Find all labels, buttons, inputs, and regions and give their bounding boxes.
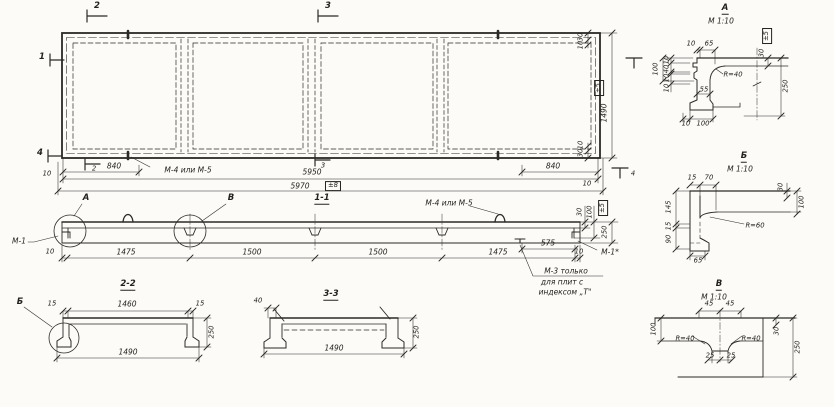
- marker-4-right: 4: [631, 171, 635, 178]
- callout-circle-a: [54, 215, 86, 247]
- mesh-cell: [193, 43, 303, 149]
- radius-v-left: R=40: [675, 336, 694, 343]
- mesh-cell: [448, 43, 591, 149]
- dim-40-a: 40: [664, 65, 671, 74]
- dim-1490-plan: 1490: [600, 103, 608, 122]
- note-m3-line3: индексом „Т": [539, 288, 592, 296]
- dim-10-right-sec11: 10: [575, 249, 584, 256]
- dim-10-a3: 10: [664, 84, 671, 93]
- m3-embed-mark: [515, 239, 525, 243]
- dim-5950: 5950: [302, 168, 321, 176]
- dim-1460: 1460: [117, 300, 136, 308]
- edge-ticks: [274, 307, 390, 321]
- marker-2-bottom: 2: [92, 166, 96, 173]
- radius-v-right: R=40: [741, 336, 760, 343]
- label-m1-left: М-1: [12, 237, 26, 245]
- note-m4-sec11: М-4 или М-5: [425, 199, 472, 207]
- dim-65-a: 65: [705, 41, 714, 48]
- dim-840-left: 840: [107, 162, 121, 170]
- callout-label-a: А: [83, 194, 90, 203]
- dim-45-left-v: 45: [705, 301, 714, 308]
- dim-45-right-v: 45: [726, 301, 735, 308]
- dim-1475-b: 1475: [488, 248, 507, 256]
- dim-55-a: 55: [700, 87, 709, 94]
- note-m3-line2: для плит с: [541, 278, 583, 286]
- dim-edge-top-10: 10: [578, 41, 585, 50]
- callout-circle-b2: [49, 323, 79, 353]
- mesh-cell: [73, 43, 176, 149]
- dim-1475-a: 1475: [116, 248, 135, 256]
- section-label-2-2: 2-2: [120, 280, 135, 291]
- dim-15-left-sec22: 15: [48, 301, 57, 308]
- dim-250-v: 250: [795, 341, 802, 354]
- tolerance-a: ±5: [762, 28, 772, 44]
- dim-840-right: 840: [546, 162, 560, 170]
- marker-1-left: 1: [39, 53, 45, 62]
- foot: [690, 238, 709, 251]
- rib-hidden-lines: [181, 39, 444, 152]
- dim-100-bottom-a: 100: [697, 121, 710, 128]
- drawing-linework: [0, 0, 834, 407]
- dim-10-a1: 10: [664, 56, 671, 65]
- dim-575: 575: [541, 239, 555, 247]
- dim-15-right-sec22: 15: [196, 301, 205, 308]
- callout-label-b2: Б: [17, 298, 23, 307]
- mesh-cell: [321, 43, 433, 149]
- dim-100-b: 100: [799, 196, 806, 209]
- dim-100-left-a: 100: [653, 63, 660, 76]
- dim-10-bottom-a: 10: [682, 121, 691, 128]
- detail-v-drawing: [655, 308, 797, 380]
- section-label-1-1: 1-1: [314, 194, 329, 205]
- dim-250-a: 250: [783, 80, 790, 93]
- detail-b-scale: М 1:10: [727, 165, 753, 173]
- detail-v-title: В: [716, 280, 722, 291]
- right-foot: [185, 337, 199, 347]
- dim-1490-sec33: 1490: [324, 344, 343, 352]
- lifting-loop-marks: [128, 31, 498, 159]
- dim-25-right-v: 25: [727, 353, 736, 360]
- dim-100-sec11: 100: [587, 206, 594, 219]
- dim-250-sec22: 250: [209, 326, 216, 339]
- left-end-rib: [62, 222, 70, 243]
- dim-25-left-v: 25: [706, 353, 715, 360]
- section-label-3-3: 3-3: [323, 290, 338, 301]
- left-foot: [264, 338, 286, 348]
- detail-a-scale: М 1:10: [708, 17, 734, 25]
- marker-3-top: 3: [325, 2, 331, 11]
- dim-30-a: 30: [759, 49, 766, 58]
- dim-145-b: 145: [666, 201, 673, 214]
- left-foot: [57, 337, 71, 347]
- dim-70-b: 70: [705, 175, 714, 182]
- detail-a-drawing: [660, 47, 788, 122]
- dim-90-b: 90: [666, 235, 673, 244]
- marker-4-left: 4: [37, 149, 43, 158]
- dim-10-top-a: 10: [687, 41, 696, 48]
- note-m4-plan: М-4 или М-5: [164, 166, 211, 174]
- dim-40-sec33: 40: [254, 298, 263, 305]
- tolerance-1490: ±5: [594, 80, 604, 96]
- label-m1-right: М-1*: [601, 248, 619, 256]
- detail-b-title: Б: [741, 152, 747, 163]
- dim-1500-b: 1500: [368, 248, 387, 256]
- radius-b: R=60: [745, 223, 764, 230]
- right-foot: [382, 338, 404, 348]
- dim-250-sec11: 250: [602, 226, 609, 239]
- dim-1490-sec22: 1490: [118, 348, 137, 356]
- dim-250-sec33: 250: [414, 326, 421, 339]
- callout-label-b: В: [228, 194, 234, 203]
- dim-30-b: 30: [778, 183, 785, 192]
- right-end-rib: [572, 222, 580, 243]
- dim-100-v: 100: [651, 323, 658, 336]
- tolerance-sec11: ±5: [598, 200, 608, 216]
- section-1-1: [28, 204, 618, 276]
- dim-10-left-sec11: 10: [46, 249, 55, 256]
- radius-a: R=40: [723, 72, 742, 79]
- detail-a-title: А: [722, 4, 729, 15]
- dim-30-sec11: 30: [577, 208, 584, 217]
- dim-margin-left: 10: [43, 171, 52, 178]
- note-m3-line1: М-3 только: [544, 267, 588, 275]
- marker-2-top: 2: [94, 2, 100, 11]
- dim-margin-right: 10: [583, 181, 592, 188]
- dim-15-top-b: 15: [688, 175, 697, 182]
- dim-15-left-b: 15: [666, 222, 673, 231]
- detail-b-drawing: [673, 182, 801, 260]
- drawing-sheet: 2 3 1 4 2 3 4 840 840 10 10 5950 5970 ±8…: [0, 0, 834, 407]
- dim-30-v: 30: [774, 327, 781, 336]
- dim-edge-bottom-30: 30: [578, 149, 585, 158]
- tolerance-5970: ±8: [325, 181, 341, 191]
- dim-5970: 5970: [290, 182, 309, 190]
- foot: [690, 100, 713, 110]
- dim-1500-a: 1500: [242, 248, 261, 256]
- rib-notches: [184, 228, 448, 235]
- dim-65-b: 65: [694, 258, 703, 265]
- dim-10-a2: 10: [664, 74, 671, 83]
- section-cut-markers: [48, 10, 642, 178]
